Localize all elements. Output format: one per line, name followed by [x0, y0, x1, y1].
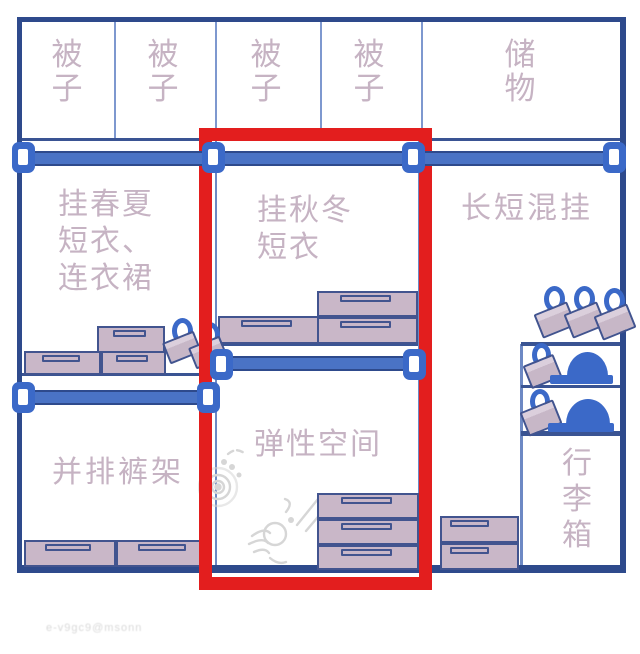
drawer-box [24, 540, 116, 567]
rod-bracket [12, 142, 35, 173]
hat-brim-icon [550, 375, 613, 384]
top-divider-1 [114, 22, 116, 138]
storage-box [97, 326, 165, 353]
compartment-label-quilt-1: 被 子 [50, 38, 86, 106]
storage-box [101, 351, 166, 375]
wardrobe-diagram: 被 子 被 子 被 子 被 子 储 物 挂春夏 短衣、 连衣裙 并排裤架 [0, 0, 640, 654]
compartment-label-quilt-3: 被 子 [249, 38, 285, 106]
rod-bracket [403, 349, 426, 380]
rod-bracket [202, 142, 225, 173]
top-divider-4 [421, 22, 423, 138]
drawer-box [116, 540, 212, 567]
section-label-spring-summer: 挂春夏 短衣、 连衣裙 [58, 186, 154, 297]
storage-box [24, 351, 101, 375]
hanging-rod-middle [224, 356, 418, 371]
compartment-label-quilt-4: 被 子 [352, 38, 388, 106]
storage-box [440, 516, 519, 543]
rod-bracket [12, 382, 35, 413]
rod-bracket [210, 349, 233, 380]
hat-brim-icon [548, 423, 614, 432]
top-divider-3 [320, 22, 322, 138]
hanging-rod-left [24, 390, 212, 405]
watermark: e-v9gc9@msonn [46, 622, 142, 634]
compartment-label-storage: 储 物 [503, 38, 539, 106]
rod-bracket [197, 382, 220, 413]
storage-box [440, 543, 519, 570]
rod-bracket [603, 142, 626, 173]
section-label-pants-rack: 并排裤架 [52, 454, 184, 491]
hanging-rod-top [24, 151, 618, 166]
top-divider-2 [215, 22, 217, 138]
section-label-luggage: 行 李 箱 [561, 446, 593, 554]
section-label-mixed-hang: 长短混挂 [461, 190, 593, 227]
luggage-unit-wall [520, 344, 523, 565]
rod-bracket [402, 142, 425, 173]
compartment-label-quilt-2: 被 子 [146, 38, 182, 106]
